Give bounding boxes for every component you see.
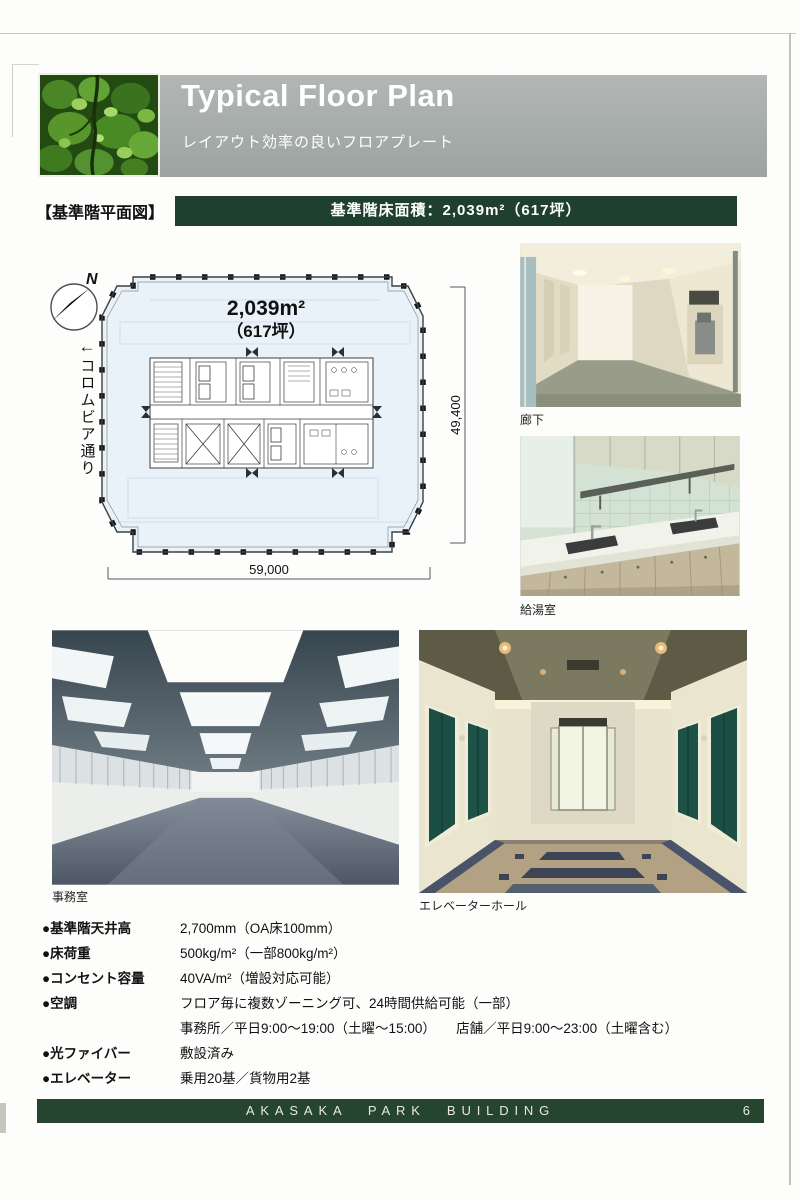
elevator-hall-photo	[419, 630, 747, 893]
plan-dim-width: 59,000	[249, 562, 289, 577]
spec-label: ●基準階天井高	[42, 916, 180, 941]
elevator-hall-label: エレベーターホール	[419, 897, 527, 914]
spec-row-hvac-hours: 事務所／平日9:00～19:00（土曜～15:00） 店舗／平日9:00～23:…	[42, 1016, 758, 1041]
spec-label	[42, 1016, 180, 1041]
kitchenette-photo	[520, 436, 740, 596]
kitchenette-label: 給湯室	[520, 601, 556, 618]
spec-row-fiber: ●光ファイバー 敷設済み	[42, 1041, 758, 1066]
spec-label: ●エレベーター	[42, 1066, 180, 1091]
leaf-image	[40, 75, 158, 175]
building-name: AKASAKA PARK BUILDING	[37, 1099, 764, 1123]
brochure-page: Typical Floor Plan レイアウト効率の良いフロアプレート 【基準…	[0, 0, 800, 1200]
plan-area-tsubo: （617坪）	[226, 321, 305, 341]
office-label: 事務室	[52, 888, 88, 905]
spec-value: 敷設済み	[180, 1041, 234, 1066]
leaf-photo	[38, 73, 160, 177]
scan-edge-top	[0, 33, 796, 34]
floor-plan-drawing: 2,039m² （617坪） 49,400 59,000 N	[40, 250, 480, 595]
section-label: 【基準階平面図】	[36, 199, 164, 223]
spec-label: ●空調	[42, 991, 180, 1016]
spec-row-ceiling: ●基準階天井高 2,700mm（OA床100mm）	[42, 916, 758, 941]
street-arrow-icon: ←	[72, 340, 102, 354]
page-subtitle: レイアウト効率の良いフロアプレート	[182, 131, 454, 152]
north-label: N	[86, 271, 98, 288]
spec-value: 2,700mm（OA床100mm）	[180, 916, 341, 941]
spec-label: ●コンセント容量	[42, 966, 180, 991]
plan-dim-height: 49,400	[448, 395, 463, 435]
street-name: コロムビア通り	[77, 358, 98, 477]
scan-edge-right	[789, 33, 791, 1185]
spec-row-hvac: ●空調 フロア毎に複数ゾーニング可、24時間供給可能（一部）	[42, 991, 758, 1016]
page-title: Typical Floor Plan	[181, 78, 455, 114]
plan-area-m2: 2,039m²	[227, 297, 305, 320]
scan-artifact-left	[0, 1103, 6, 1133]
scan-artifact-corner	[12, 64, 39, 137]
spec-value: 事務所／平日9:00～19:00（土曜～15:00） 店舗／平日9:00～23:…	[180, 1016, 678, 1041]
spec-row-elevators: ●エレベーター 乗用20基／貨物用2基	[42, 1066, 758, 1091]
page-number: 6	[743, 1099, 750, 1123]
spec-value: 40VA/m²（増設対応可能）	[180, 966, 340, 991]
spec-row-floor-load: ●床荷重 500kg/m²（一部800kg/m²）	[42, 941, 758, 966]
street-label: ← コロムビア通り	[72, 340, 102, 482]
spec-label: ●光ファイバー	[42, 1041, 180, 1066]
footer-bar: AKASAKA PARK BUILDING 6	[37, 1099, 764, 1123]
corridor-photo	[520, 243, 741, 407]
spec-value: 乗用20基／貨物用2基	[180, 1066, 311, 1091]
north-compass-icon: N	[51, 271, 98, 330]
office-photo	[52, 630, 399, 885]
spec-list: ●基準階天井高 2,700mm（OA床100mm） ●床荷重 500kg/m²（…	[42, 916, 758, 1091]
spec-row-outlet: ●コンセント容量 40VA/m²（増設対応可能）	[42, 966, 758, 991]
spec-value: 500kg/m²（一部800kg/m²）	[180, 941, 347, 966]
spec-label: ●床荷重	[42, 941, 180, 966]
floor-area-banner: 基準階床面積：2,039m²（617坪）	[175, 196, 737, 226]
corridor-label: 廊下	[520, 411, 544, 428]
spec-value: フロア毎に複数ゾーニング可、24時間供給可能（一部）	[180, 991, 519, 1016]
